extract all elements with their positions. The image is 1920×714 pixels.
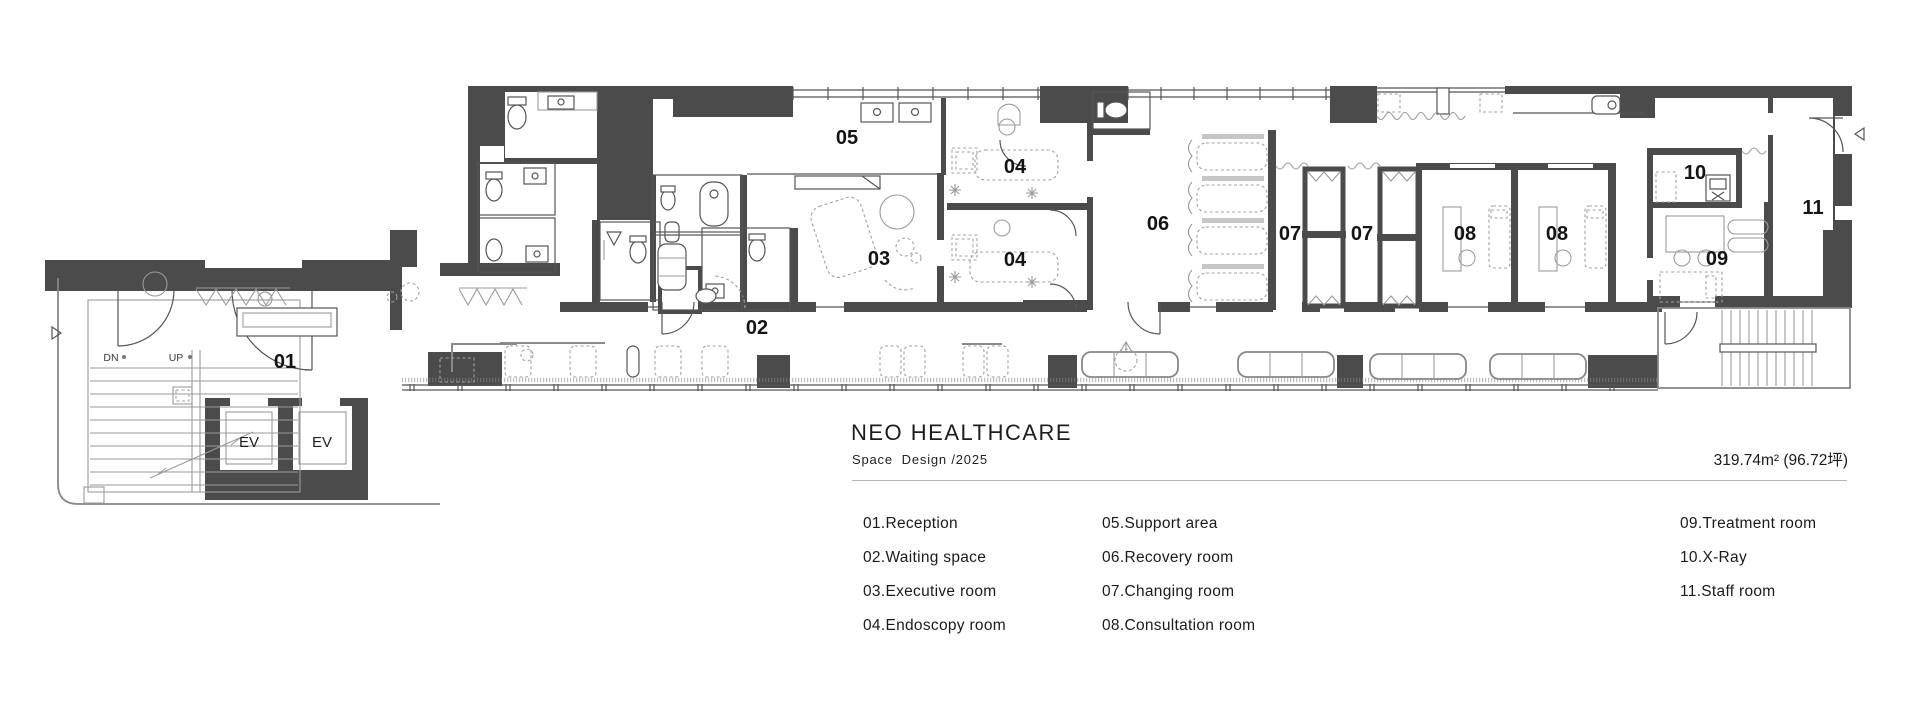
room-label-08: 08 [1454, 223, 1476, 245]
corridor-furniture [440, 342, 1586, 382]
entry-marker-left [52, 327, 61, 339]
room-label-03: 03 [868, 248, 890, 270]
project-subtitle: Space Design /2025 [852, 452, 988, 467]
room-label-02: 02 [746, 317, 768, 339]
stairs-right [1658, 308, 1850, 388]
floor-plan-sheet: 0102030404050607070808091011EVEVDNUP NEO… [0, 0, 1920, 714]
title-divider [852, 480, 1847, 481]
room-label-08: 08 [1546, 223, 1568, 245]
room-label-04: 04 [1004, 156, 1027, 178]
room-label-10: 10 [1684, 162, 1706, 184]
legend-item: 07.Changing room [1102, 580, 1255, 614]
room-label-04: 04 [1004, 249, 1027, 271]
legend-item: 11.Staff room [1680, 580, 1816, 614]
legend-column-3: 09.Treatment room10.X-Ray11.Staff room [1680, 512, 1816, 614]
room-label-01: 01 [274, 351, 296, 373]
legend-item: 06.Recovery room [1102, 546, 1255, 580]
stair-direction-label: UP [169, 352, 184, 364]
entry-marker-right [1855, 128, 1864, 140]
floor-area: 319.74m² (96.72坪) [1548, 448, 1848, 470]
room-label-05: 05 [836, 127, 858, 149]
legend-column-1: 01.Reception02.Waiting space03.Executive… [863, 512, 1006, 648]
elevator-label: EV [312, 434, 332, 451]
legend-item: 03.Executive room [863, 580, 1006, 614]
room-label-07: 07 [1351, 223, 1373, 245]
legend-column-2: 05.Support area06.Recovery room07.Changi… [1102, 512, 1255, 648]
room-label-07: 07 [1279, 223, 1301, 245]
legend-item: 09.Treatment room [1680, 512, 1816, 546]
elevator-label: EV [239, 434, 259, 451]
legend-item: 01.Reception [863, 512, 1006, 546]
stair-direction-label: DN [103, 352, 118, 364]
legend-item: 04.Endoscopy room [863, 614, 1006, 648]
legend-item: 05.Support area [1102, 512, 1255, 546]
legend-item: 02.Waiting space [863, 546, 1006, 580]
project-title: NEO HEALTHCARE [851, 420, 1072, 446]
room-label-09: 09 [1706, 248, 1728, 270]
room-label-11: 11 [1802, 197, 1823, 219]
plant [401, 283, 419, 301]
room-label-06: 06 [1147, 213, 1169, 235]
legend-item: 10.X-Ray [1680, 546, 1816, 580]
legend-item: 08.Consultation room [1102, 614, 1255, 648]
